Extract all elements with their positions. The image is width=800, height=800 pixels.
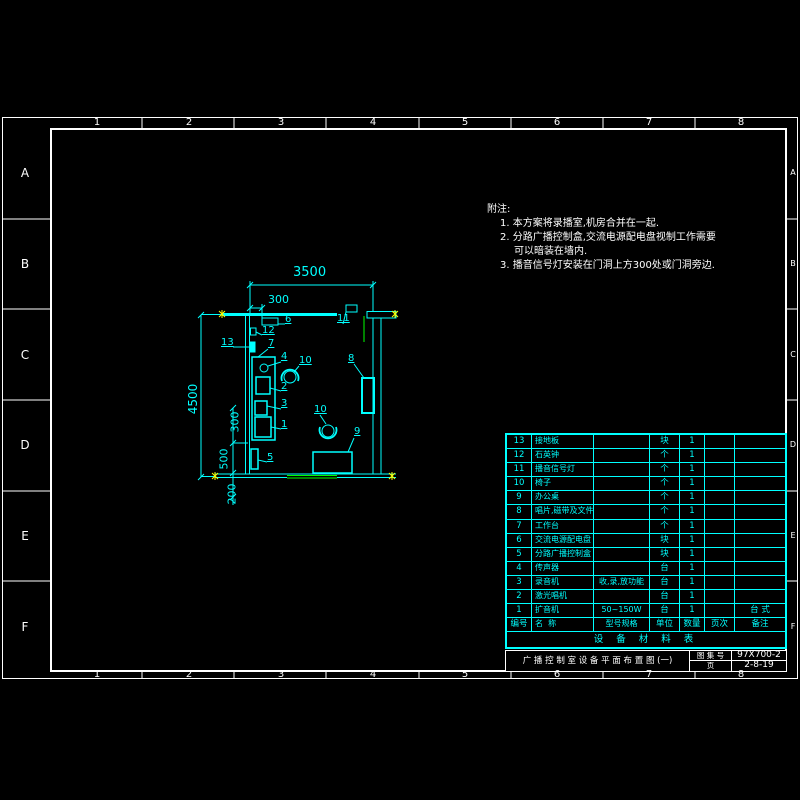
table-row: 1扩音机50~150W台1台 式 <box>507 604 785 618</box>
frame-col-bottom-6: 6 <box>554 670 560 680</box>
cell-remark <box>735 562 785 575</box>
cell-no: 5 <box>507 548 532 561</box>
callout-3: 3 <box>281 399 287 409</box>
cell-no: 2 <box>507 590 532 603</box>
cell-remark: 台 式 <box>735 604 785 617</box>
frame-row-right-D: D <box>790 441 796 449</box>
cell-no: 编号 <box>507 618 532 631</box>
door-bottom <box>287 476 337 479</box>
cell-qty: 1 <box>680 477 705 490</box>
cell-unit: 个 <box>650 491 680 504</box>
cell-name: 分路广播控制盒 <box>532 548 594 561</box>
notes-title: 附注: <box>487 204 510 216</box>
callout-12: 12 <box>262 326 275 336</box>
cell-spec <box>594 491 650 504</box>
table-row: 10椅子个1 <box>507 477 785 491</box>
cell-no: 4 <box>507 562 532 575</box>
cell-name: 扩音机 <box>532 604 594 617</box>
callout-5: 5 <box>267 453 273 463</box>
power-panel-6 <box>262 318 278 325</box>
cell-qty: 1 <box>680 449 705 462</box>
cell-remark <box>735 576 785 589</box>
cell-no: 10 <box>507 477 532 490</box>
cell-unit: 块 <box>650 435 680 448</box>
frame-col-bottom-1: 1 <box>94 670 100 680</box>
table-row: 13接地板块1 <box>507 435 785 449</box>
microphone-4 <box>260 364 268 372</box>
dim-300-top: 300 <box>268 294 289 305</box>
equipment-material-table: 13接地板块112石英钟个111播音信号灯个110椅子个19办公桌个18唱片,磁… <box>505 433 787 649</box>
cell-qty: 1 <box>680 505 705 518</box>
table-row: 7工作台个1 <box>507 520 785 534</box>
frame-col-bottom-5: 5 <box>462 670 468 680</box>
dim-3500: 3500 <box>293 266 326 279</box>
drawing-title: 广 播 控 制 室 设 备 平 面 布 置 图 (一) <box>506 651 690 671</box>
cell-name: 办公桌 <box>532 491 594 504</box>
dim-4500: 4500 <box>187 384 199 415</box>
equipment-rows: 13接地板块112石英钟个111播音信号灯个110椅子个19办公桌个18唱片,磁… <box>507 435 785 632</box>
cell-qty: 1 <box>680 463 705 476</box>
cell-name: 石英钟 <box>532 449 594 462</box>
callout-2: 2 <box>281 382 287 392</box>
signal-light-11 <box>346 305 357 312</box>
frame-row-right-C: C <box>790 351 796 359</box>
callout-9: 9 <box>354 427 360 437</box>
cell-no: 12 <box>507 449 532 462</box>
cell-name: 名 称 <box>532 618 594 631</box>
cell-no: 3 <box>507 576 532 589</box>
frame-col-bottom-2: 2 <box>186 670 192 680</box>
frame-col-bottom-4: 4 <box>370 670 376 680</box>
cell-unit: 单位 <box>650 618 680 631</box>
cell-unit: 个 <box>650 520 680 533</box>
cell-no: 7 <box>507 520 532 533</box>
frame-col-bottom-7: 7 <box>646 670 652 680</box>
frame-col-top-3: 3 <box>278 118 284 128</box>
table-row: 12石英钟个1 <box>507 449 785 463</box>
cell-remark <box>735 477 785 490</box>
frame-col-top-6: 6 <box>554 118 560 128</box>
cell-remark <box>735 449 785 462</box>
cell-no: 11 <box>507 463 532 476</box>
frame-row-left-A: A <box>21 167 29 179</box>
frame-row-right-F: F <box>791 623 796 631</box>
cell-page <box>705 477 735 490</box>
frame-row-left-D: D <box>20 439 29 451</box>
cell-spec: 50~150W <box>594 604 650 617</box>
callout-13: 13 <box>221 338 234 348</box>
cell-qty: 1 <box>680 590 705 603</box>
cell-page: 页次 <box>705 618 735 631</box>
cell-qty: 1 <box>680 491 705 504</box>
atlas-label: 图 集 号 <box>690 651 731 661</box>
frame-row-left-C: C <box>21 349 29 361</box>
frame-row-left-B: B <box>21 258 29 270</box>
cell-name: 交流电源配电盘 <box>532 534 594 547</box>
cell-page <box>705 604 735 617</box>
cell-page <box>705 590 735 603</box>
page-label: 页 <box>690 661 731 671</box>
frame-row-right-E: E <box>790 532 795 540</box>
cell-name: 椅子 <box>532 477 594 490</box>
cell-no: 8 <box>507 505 532 518</box>
cell-unit: 台 <box>650 562 680 575</box>
frame-col-bottom-3: 3 <box>278 670 284 680</box>
frame-row-right-A: A <box>790 169 795 177</box>
ground-board-13 <box>250 342 256 352</box>
cell-unit: 个 <box>650 505 680 518</box>
table-row: 2激光唱机台1 <box>507 590 785 604</box>
cell-remark <box>735 590 785 603</box>
cell-page <box>705 576 735 589</box>
table-row: 6交流电源配电盘块1 <box>507 534 785 548</box>
cell-remark <box>735 463 785 476</box>
table-row: 4传声器台1 <box>507 562 785 576</box>
note-line-1: 1. 本方案将录播室,机房合并在一起. <box>500 218 659 230</box>
cell-spec <box>594 534 650 547</box>
table-row: 5分路广播控制盒块1 <box>507 548 785 562</box>
callout-7: 7 <box>268 339 274 349</box>
control-box-5 <box>251 449 258 469</box>
table-row: 11播音信号灯个1 <box>507 463 785 477</box>
cell-name: 激光唱机 <box>532 590 594 603</box>
frame-col-top-7: 7 <box>646 118 652 128</box>
cell-name: 接地板 <box>532 435 594 448</box>
clock-12 <box>251 328 257 335</box>
callout-10a: 10 <box>299 356 312 366</box>
cell-unit: 块 <box>650 548 680 561</box>
room-walls <box>215 312 396 478</box>
cell-name: 播音信号灯 <box>532 463 594 476</box>
callout-10b: 10 <box>314 405 327 415</box>
cell-spec: 型号规格 <box>594 618 650 631</box>
frame-col-bottom-8: 8 <box>738 670 744 680</box>
left-zone-ticks <box>2 219 51 581</box>
cell-remark <box>735 520 785 533</box>
cell-remark <box>735 505 785 518</box>
frame-col-top-8: 8 <box>738 118 744 128</box>
table-row: 8唱片,磁带及文件柜个1 <box>507 505 785 519</box>
note-line-3: 3. 播音信号灯安装在门洞上方300处或门洞旁边. <box>500 260 715 272</box>
cell-remark <box>735 435 785 448</box>
cell-spec <box>594 548 650 561</box>
cell-spec <box>594 477 650 490</box>
cell-page <box>705 534 735 547</box>
atlas-number: 97X700-2 <box>732 651 786 661</box>
cell-unit: 台 <box>650 604 680 617</box>
cell-remark <box>735 548 785 561</box>
cell-unit: 台 <box>650 590 680 603</box>
title-block-labels: 图 集 号 页 <box>690 651 732 671</box>
amplifier-1 <box>255 417 271 437</box>
cell-unit: 个 <box>650 477 680 490</box>
cell-page <box>705 491 735 504</box>
desk-9 <box>313 452 352 473</box>
wall-top-right-cap <box>367 312 396 319</box>
cell-spec <box>594 435 650 448</box>
frame-col-top-2: 2 <box>186 118 192 128</box>
cd-player-2 <box>256 377 270 394</box>
dim-300-left: 300 <box>230 412 241 433</box>
recorder-3 <box>255 401 267 415</box>
frame-row-right-B: B <box>790 260 796 268</box>
cell-name: 唱片,磁带及文件柜 <box>532 505 594 518</box>
point-markers <box>212 310 398 480</box>
cell-spec <box>594 520 650 533</box>
cell-no: 6 <box>507 534 532 547</box>
cell-page <box>705 435 735 448</box>
cell-spec <box>594 449 650 462</box>
table-header-row: 编号名 称型号规格单位数量页次备注 <box>507 618 785 632</box>
cell-qty: 1 <box>680 548 705 561</box>
table-title: 设 备 材 料 表 <box>507 632 785 647</box>
drawing-sheet: 附注: 1. 本方案将录播室,机房合并在一起. 2. 分路广播控制盒,交流电源配… <box>0 0 800 800</box>
title-block-values: 97X700-2 2-8-19 <box>732 651 786 671</box>
cell-qty: 数量 <box>680 618 705 631</box>
cell-qty: 1 <box>680 534 705 547</box>
frame-col-top-5: 5 <box>462 118 468 128</box>
cell-page <box>705 520 735 533</box>
frame-col-top-1: 1 <box>94 118 100 128</box>
frame-col-top-4: 4 <box>370 118 376 128</box>
callout-4: 4 <box>281 352 287 362</box>
table-row: 9办公桌个1 <box>507 491 785 505</box>
cell-name: 传声器 <box>532 562 594 575</box>
cell-spec <box>594 562 650 575</box>
cell-page <box>705 449 735 462</box>
note-line-2b: 可以暗装在墙内. <box>514 246 587 258</box>
callout-1: 1 <box>281 420 287 430</box>
cell-no: 9 <box>507 491 532 504</box>
chair-10b <box>322 425 334 437</box>
cell-spec <box>594 505 650 518</box>
cad-linework <box>0 0 800 800</box>
wall-left <box>246 314 250 474</box>
cell-page <box>705 562 735 575</box>
cell-spec: 收,录,放功能 <box>594 576 650 589</box>
right-zone-ticks <box>786 219 798 581</box>
cell-no: 13 <box>507 435 532 448</box>
cell-qty: 1 <box>680 520 705 533</box>
bottom-zone-ticks <box>142 671 695 678</box>
cell-page <box>705 463 735 476</box>
cell-qty: 1 <box>680 604 705 617</box>
cell-remark <box>735 491 785 504</box>
frame-row-left-F: F <box>22 621 29 633</box>
cell-unit: 块 <box>650 534 680 547</box>
table-row: 3录音机收,录,放功能台1 <box>507 576 785 590</box>
dim-500-left: 500 <box>219 449 230 470</box>
cell-qty: 1 <box>680 562 705 575</box>
frame-row-left-E: E <box>21 530 29 542</box>
cell-name: 录音机 <box>532 576 594 589</box>
cell-qty: 1 <box>680 435 705 448</box>
cell-qty: 1 <box>680 576 705 589</box>
callout-8: 8 <box>348 354 354 364</box>
cell-unit: 个 <box>650 449 680 462</box>
cell-remark: 备注 <box>735 618 785 631</box>
cell-remark <box>735 534 785 547</box>
cell-unit: 台 <box>650 576 680 589</box>
cell-name: 工作台 <box>532 520 594 533</box>
cell-page <box>705 505 735 518</box>
note-line-2: 2. 分路广播控制盒,交流电源配电盘视制工作需要 <box>500 232 716 244</box>
callout-6: 6 <box>285 315 291 325</box>
cell-spec <box>594 590 650 603</box>
cell-unit: 个 <box>650 463 680 476</box>
callout-11: 11 <box>337 314 350 324</box>
dim-200-left: 200 <box>227 484 238 505</box>
cell-page <box>705 548 735 561</box>
cell-spec <box>594 463 650 476</box>
cabinet-8 <box>362 378 374 413</box>
cell-no: 1 <box>507 604 532 617</box>
top-zone-ticks <box>142 118 695 129</box>
